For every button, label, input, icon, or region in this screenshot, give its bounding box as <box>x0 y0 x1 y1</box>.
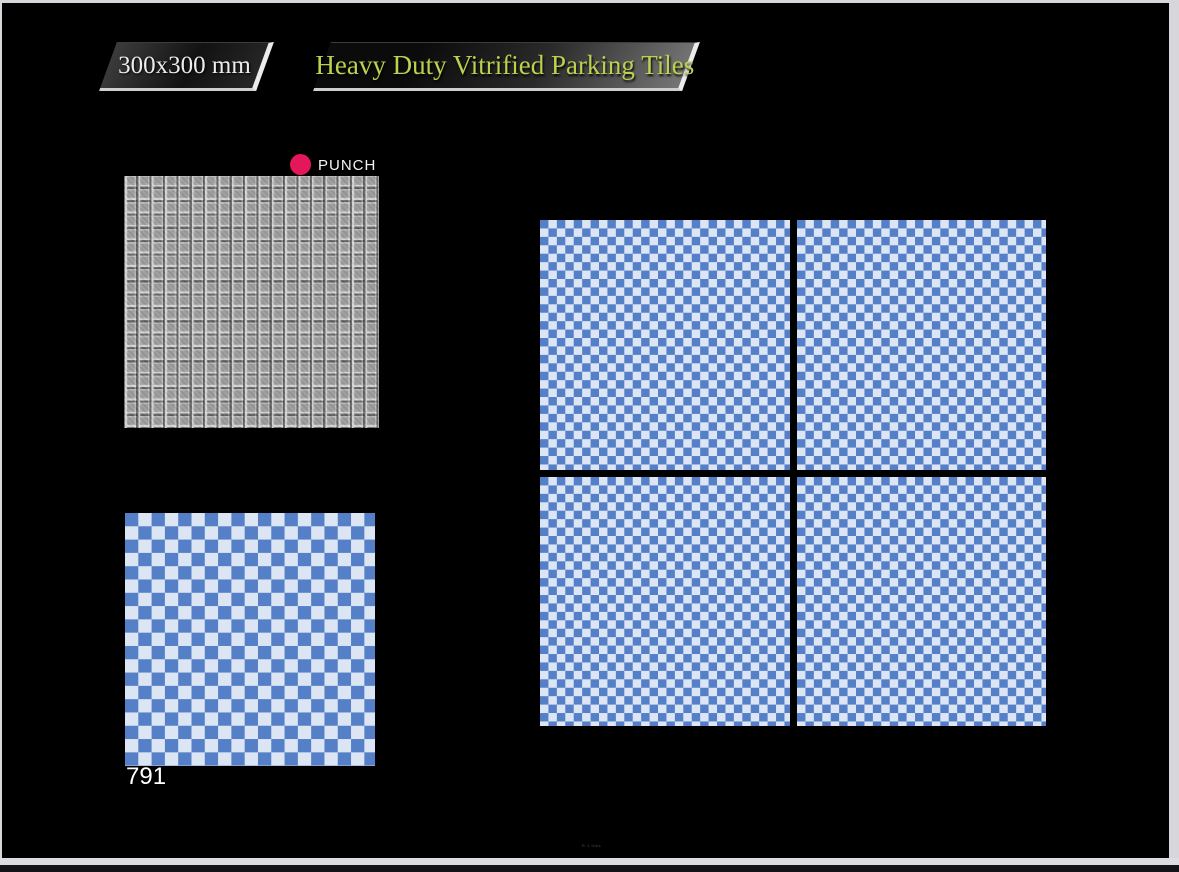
window-frame-right <box>1169 0 1179 865</box>
tile-preview-cell <box>797 477 1047 727</box>
title-badge: Heavy Duty Vitrified Parking Tiles <box>313 42 700 91</box>
tile-preview-cell <box>797 220 1047 470</box>
size-badge-label: 300x300 mm <box>118 52 251 80</box>
finish-label: PUNCH <box>318 157 376 174</box>
punch-texture-swatch <box>124 176 379 428</box>
window-bottom-strip <box>0 865 1179 872</box>
size-badge: 300x300 mm <box>99 42 274 91</box>
window-bottom-bar <box>0 858 1179 865</box>
tile-preview-cell <box>540 220 790 470</box>
page-title: Heavy Duty Vitrified Parking Tiles <box>315 50 694 81</box>
footer-watermark: R-1 tiles <box>2 843 1179 848</box>
product-code: 791 <box>126 763 166 791</box>
catalog-page-canvas: 300x300 mm Heavy Duty Vitrified Parking … <box>2 3 1169 858</box>
tile-layout-preview <box>540 220 1046 726</box>
tile-preview-cell <box>540 477 790 727</box>
tile-design-swatch <box>125 513 375 766</box>
punch-color-dot-icon <box>290 154 311 175</box>
